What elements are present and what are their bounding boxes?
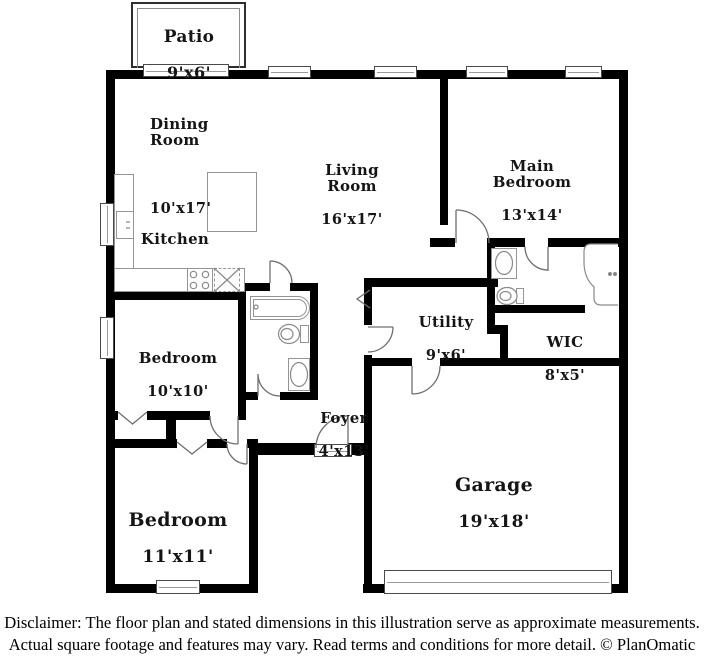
disclaimer-line-1: Disclaimer: The floor plan and stated di… [0,612,704,634]
bifold-door-icon [177,442,207,454]
room-label-main-bedroom: Main Bedroom 13'x14' [493,140,572,242]
faucet-icon [254,305,258,309]
room-dims: 10'x10' [139,384,218,400]
sink-icon [291,363,308,387]
room-label-utility: Utility 9'x6' [419,296,474,381]
disclaimer: Disclaimer: The floor plan and stated di… [0,612,704,656]
faucet-icon [126,222,130,228]
room-dims: 13'x14' [493,208,572,224]
room-label-bedroom-10: Bedroom 10'x10' [139,332,218,417]
door-arc [258,374,280,396]
dishwasher-x-icon [214,268,240,292]
disclaimer-line-2: Actual square footage and features may v… [0,634,704,656]
door-arc [368,327,393,352]
room-name: Utility [419,314,474,331]
stove-burner-icon [190,271,196,277]
bifold-door-icon [357,290,370,308]
door-arc [227,444,247,464]
room-name: Foyer [319,410,370,427]
room-label-kitchen: Kitchen [141,213,209,265]
room-dims: 4'x13' [319,444,370,460]
room-dims: 11'x11' [129,548,228,567]
room-name: Main Bedroom [493,158,572,191]
room-name: WIC [545,334,585,351]
room-label-garage: Garage 19'x18' [455,457,533,549]
faucet-icon [609,273,612,276]
room-label-living: Living Room 16'x17' [321,144,382,246]
room-name: Living Room [321,162,382,195]
stove-burner-icon [202,271,208,277]
room-name: Dining Room [150,116,211,149]
faucet-icon [614,273,617,276]
door-arc [456,210,489,243]
stove-burner-icon [190,282,196,288]
room-name: Patio [164,28,215,47]
floor-plan: Patio 9'x6' Dining Room 10'x17' Kitchen … [0,0,704,658]
toilet-bowl-icon [281,329,293,340]
door-swing-overlay [0,0,704,658]
room-label-foyer: Foyer 4'x13' [319,392,370,477]
room-dims: 16'x17' [321,212,382,228]
stove-burner-icon [202,282,208,288]
door-arc [210,416,238,444]
room-label-wic: WIC 8'x5' [545,316,585,401]
sink-icon [496,252,513,275]
room-dims: 9'x6' [164,64,215,82]
door-arc [525,247,548,271]
room-name: Bedroom [139,350,218,367]
toilet-bowl-icon [500,292,511,301]
corner-bathtub-icon [584,244,618,305]
room-name: Bedroom [129,510,228,531]
room-name: Kitchen [141,231,209,248]
room-dims: 9'x6' [419,348,474,364]
room-label-patio: Patio 9'x6' [164,10,215,99]
room-dims: 8'x5' [545,368,585,384]
room-dims: 19'x18' [455,513,533,532]
room-name: Garage [455,475,533,496]
door-arc [270,261,292,283]
room-label-bedroom-11: Bedroom 11'x11' [129,492,228,584]
